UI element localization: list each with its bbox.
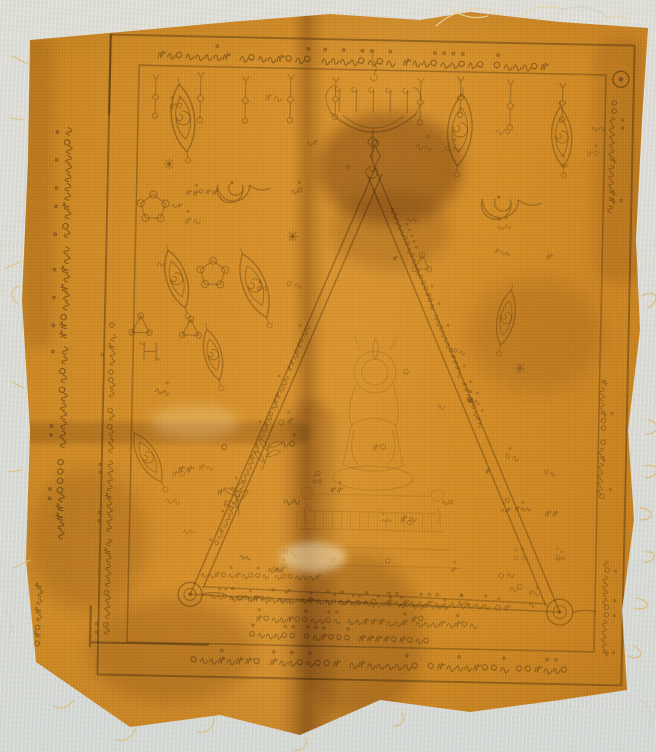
thread-strand	[642, 293, 656, 308]
thread-strand	[12, 56, 28, 64]
thread-strand	[560, 7, 608, 18]
thread-strand	[644, 552, 654, 562]
thread-strand	[634, 598, 647, 609]
thread-strand	[12, 286, 18, 304]
thread-strand	[10, 118, 24, 120]
thread-strand	[14, 560, 30, 568]
photo-stage: สพพเมตตา อเนกอานา มหาเมตตา ทุกาษปิติ อิก…	[0, 0, 656, 752]
thread-strand	[640, 508, 651, 520]
thread-strand	[294, 738, 306, 750]
thread-strand	[640, 700, 652, 726]
thread-strand	[6, 262, 20, 268]
thread-strand	[628, 646, 641, 658]
thread-strand	[4, 610, 11, 640]
thread-strand	[198, 718, 214, 732]
thread-strand	[436, 9, 500, 26]
thread-strand	[116, 728, 136, 741]
thread-strand	[600, 16, 630, 22]
thread-strand	[644, 465, 656, 478]
frayed-threads	[0, 0, 656, 752]
thread-strand	[646, 420, 656, 434]
thread-strand	[54, 700, 74, 708]
thread-strand	[448, 6, 488, 18]
thread-strand	[520, 7, 564, 16]
thread-strand	[8, 470, 22, 472]
thread-strand	[12, 382, 24, 388]
thread-strand	[394, 712, 404, 726]
